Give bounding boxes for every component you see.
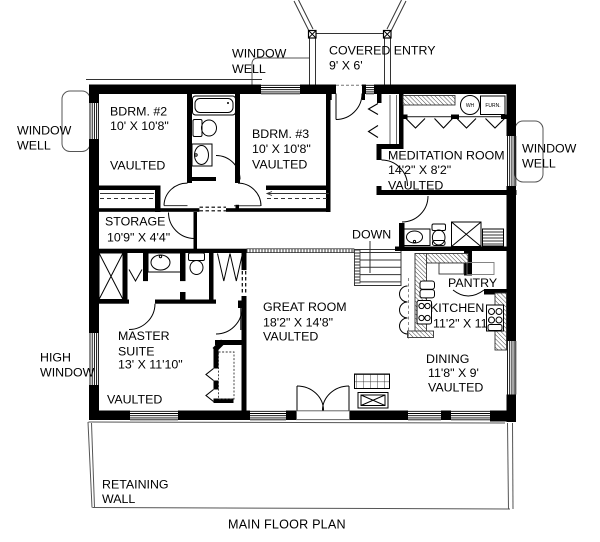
svg-text:WINDOW: WINDOW: [522, 142, 577, 156]
svg-text:KITCHEN: KITCHEN: [430, 301, 484, 315]
svg-text:MEDITATION ROOM: MEDITATION ROOM: [388, 149, 505, 163]
svg-text:STORAGE: STORAGE: [105, 215, 165, 229]
svg-text:14'2" X 8'2": 14'2" X 8'2": [388, 163, 451, 177]
svg-text:BDRM. #2: BDRM. #2: [110, 105, 167, 119]
svg-text:DINING: DINING: [426, 352, 469, 366]
svg-text:BDRM. #3: BDRM. #3: [252, 127, 309, 141]
svg-text:13' X 11'10": 13' X 11'10": [118, 358, 183, 372]
svg-text:WELL: WELL: [232, 62, 266, 76]
svg-text:10'9" X 4'4": 10'9" X 4'4": [107, 231, 170, 245]
svg-text:WELL: WELL: [522, 157, 556, 171]
svg-text:GREAT ROOM: GREAT ROOM: [263, 300, 347, 314]
svg-text:VAULTED: VAULTED: [110, 159, 165, 173]
svg-text:18'2" X 14'8": 18'2" X 14'8": [263, 316, 333, 330]
svg-text:WH: WH: [466, 103, 475, 109]
svg-text:10' X 10'8": 10' X 10'8": [252, 142, 311, 156]
svg-text:DOWN: DOWN: [352, 228, 391, 242]
svg-text:WINDOW: WINDOW: [17, 124, 72, 138]
svg-text:COVERED ENTRY: COVERED ENTRY: [329, 44, 436, 58]
svg-text:9' X 6': 9' X 6': [329, 59, 363, 73]
svg-text:WALL: WALL: [102, 492, 135, 506]
svg-text:RETAINING: RETAINING: [102, 478, 169, 492]
svg-text:11'2" X 11': 11'2" X 11': [433, 317, 490, 331]
svg-text:SUITE: SUITE: [118, 345, 155, 359]
svg-text:HIGH: HIGH: [40, 351, 71, 365]
svg-text:VAULTED: VAULTED: [428, 381, 483, 395]
svg-text:WINDOW: WINDOW: [232, 47, 287, 61]
svg-text:VAULTED: VAULTED: [388, 179, 443, 193]
svg-text:10' X 10'8": 10' X 10'8": [110, 119, 169, 133]
svg-text:MAIN FLOOR PLAN: MAIN FLOOR PLAN: [228, 518, 346, 532]
svg-text:VAULTED: VAULTED: [263, 330, 318, 344]
svg-text:WINDOW: WINDOW: [40, 366, 95, 380]
svg-text:WELL: WELL: [17, 139, 51, 153]
svg-text:PANTRY: PANTRY: [448, 276, 497, 290]
svg-text:FURN.: FURN.: [485, 103, 500, 109]
svg-text:VAULTED: VAULTED: [107, 393, 162, 407]
svg-text:11'8" X 9': 11'8" X 9': [428, 366, 479, 380]
svg-text:MASTER: MASTER: [118, 329, 170, 343]
svg-text:VAULTED: VAULTED: [252, 158, 307, 172]
